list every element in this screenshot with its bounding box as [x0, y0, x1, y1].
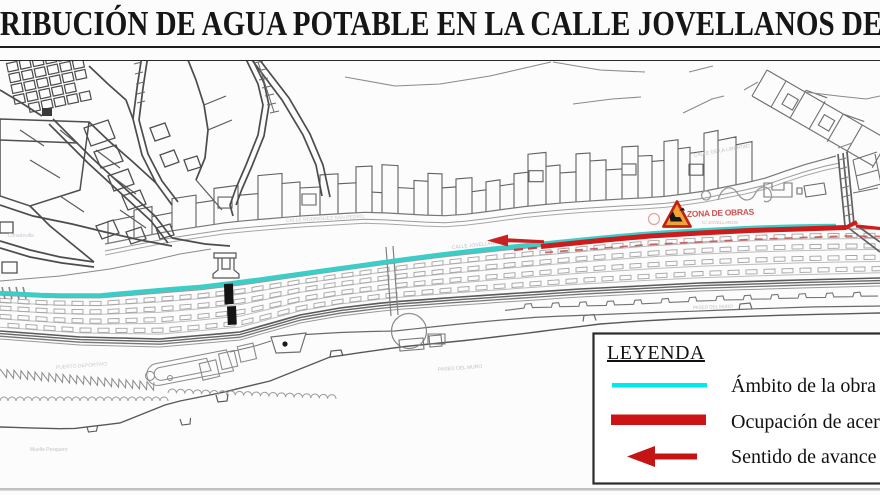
- svg-text:Cimadevilla: Cimadevilla: [8, 233, 34, 239]
- svg-text:Ámbito de la obra: Ámbito de la obra: [731, 374, 876, 397]
- svg-text:Sentido de avance: Sentido de avance: [731, 446, 877, 468]
- svg-text:LEYENDA: LEYENDA: [607, 342, 705, 364]
- svg-text:PASEO DEL MURO: PASEO DEL MURO: [693, 304, 734, 310]
- svg-text:PUERTO DEPORTIVO: PUERTO DEPORTIVO: [56, 361, 108, 371]
- svg-text:ZONA DE OBRAS: ZONA DE OBRAS: [687, 207, 755, 219]
- svg-text:CALLE RODRIGUEZ SAN PEDRO: CALLE RODRIGUEZ SAN PEDRO: [286, 214, 364, 224]
- svg-text:PASEO DEL MURO: PASEO DEL MURO: [438, 364, 483, 373]
- svg-text:C/ JOVELLANOS: C/ JOVELLANOS: [702, 220, 738, 225]
- svg-text:Muelle Pesquero: Muelle Pesquero: [30, 447, 68, 453]
- svg-text:CALLE DE LA LIBERTAD: CALLE DE LA LIBERTAD: [693, 143, 750, 159]
- svg-text:Ocupación de acera: Ocupación de acera: [731, 411, 880, 433]
